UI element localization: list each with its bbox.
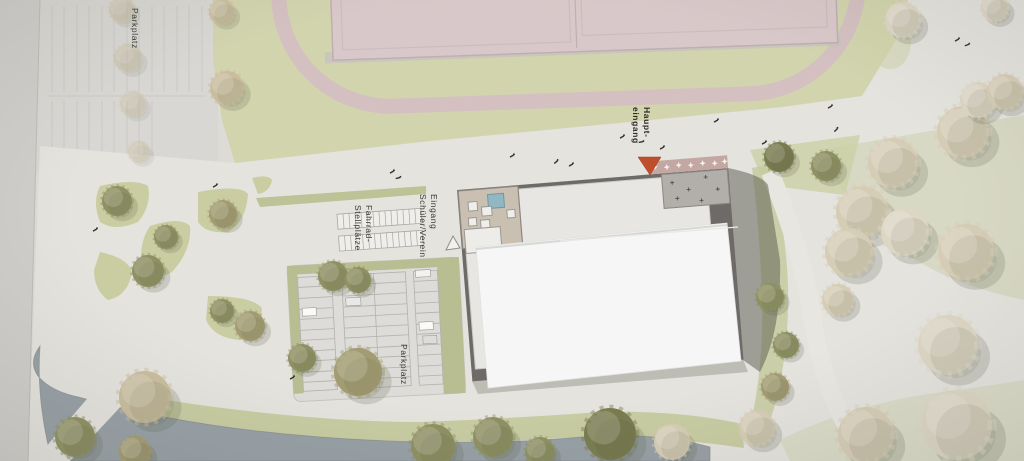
label-eingang-schueler-verein: Eingang Schüler/Verein — [417, 194, 439, 258]
roof-terrace — [661, 169, 730, 208]
site-plan-drawing — [0, 0, 1024, 461]
label-haupteingang: Haupt- eingang — [630, 107, 652, 144]
label-parkplatz-north: Parkplatz — [129, 8, 140, 49]
site-plan: Parkplatz Haupt- eingang Eingang Schüler… — [0, 0, 1024, 461]
label-parkplatz-south: Parkplatz — [398, 344, 409, 385]
building-white-roof — [476, 223, 741, 388]
label-fahrrad-stellplaetze: Fahrrad- Stellplätze — [352, 205, 374, 251]
